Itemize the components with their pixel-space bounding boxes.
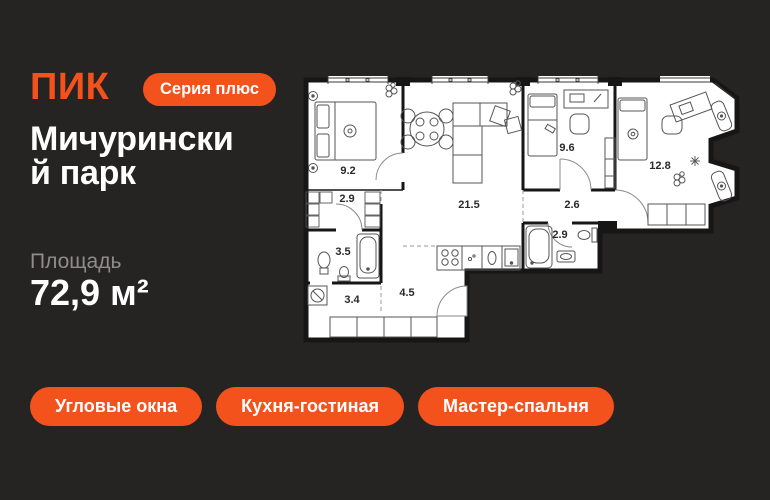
snowflake-icon [690,156,700,166]
room-label-corridor: 2.6 [564,199,579,211]
window-bedroom-2 [538,76,598,84]
room-label-wardrobe: 2.9 [339,193,354,205]
room-label-shower-room: 2.9 [552,229,567,241]
room-label-hallway: 3.4 [344,294,360,306]
pik-logo[interactable]: ПИК [30,68,109,106]
room-label-kitchen-living: 21.5 [458,199,479,211]
room-label-entry-hall: 4.5 [399,287,414,299]
floorplan-svg: 9.2 2.9 3.5 3.4 4.5 21.5 2.6 2.9 9.6 12.… [302,74,740,344]
window-living [432,76,488,84]
room-label-bathroom: 3.5 [335,246,350,258]
room-label-master-bedroom: 12.8 [649,160,670,172]
floorplan: 9.2 2.9 3.5 3.4 4.5 21.5 2.6 2.9 9.6 12.… [302,74,740,344]
window-bedroom [328,76,388,84]
tag-master-bedroom[interactable]: Мастер-спальня [418,387,614,426]
area-value: 72,9 м² [30,274,149,312]
feature-tags: Угловые окна Кухня-гостиная Мастер-спаль… [30,387,614,426]
area-label: Площадь [30,251,121,273]
room-label-bedroom: 9.2 [340,165,355,177]
promo-card: ПИК Серия плюс Мичуринский парк Площадь … [0,0,770,500]
room-label-bedroom-2: 9.6 [559,142,574,154]
tag-corner-windows[interactable]: Угловые окна [30,387,202,426]
tag-kitchen-living[interactable]: Кухня-гостиная [216,387,404,426]
project-title: Мичуринский парк [30,122,248,190]
series-badge: Серия плюс [143,73,276,106]
